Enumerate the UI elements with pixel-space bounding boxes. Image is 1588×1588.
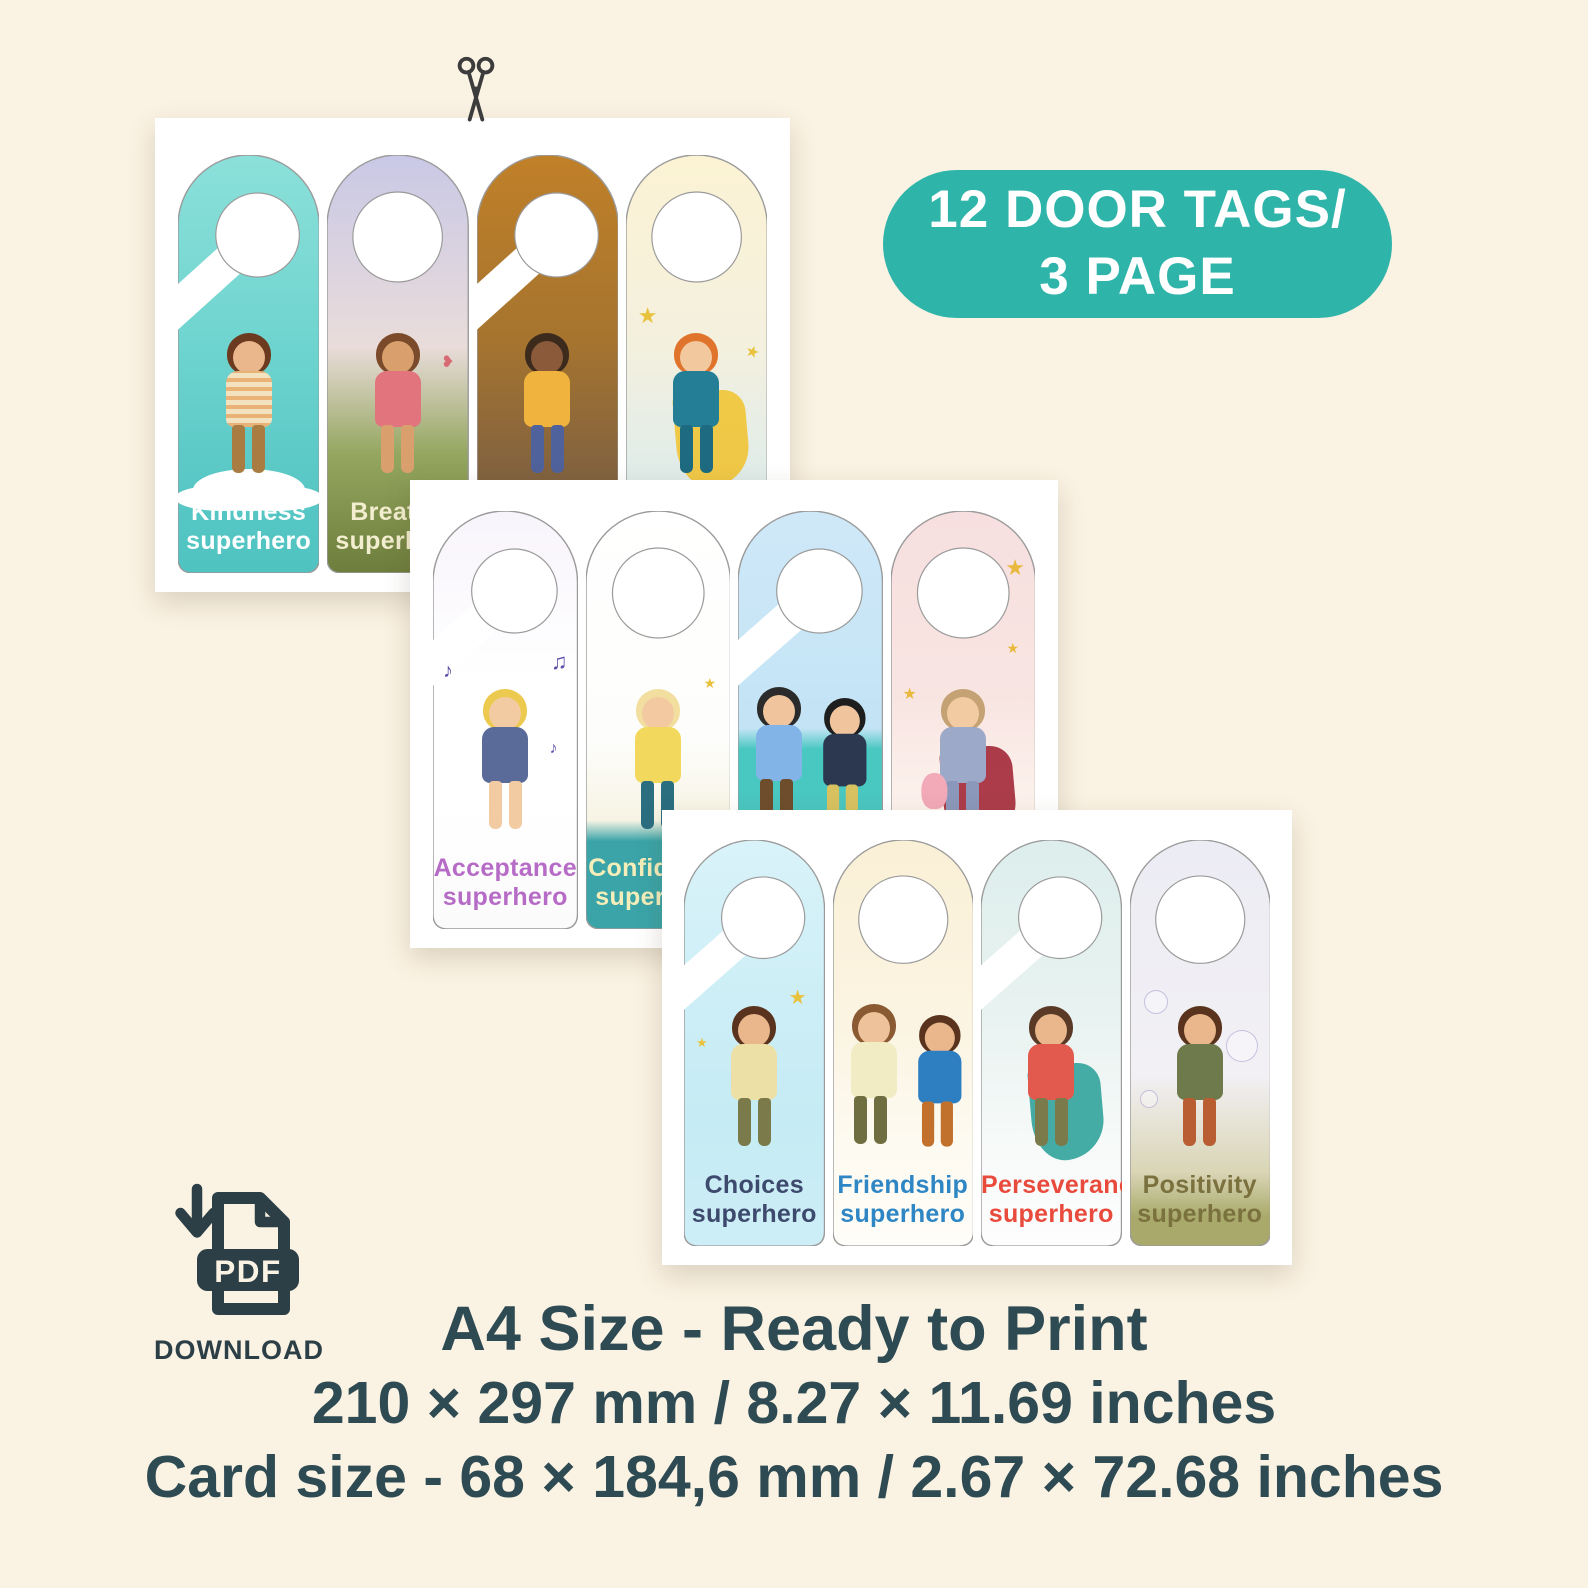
- size-info: A4 Size - Ready to Print 210 × 297 mm / …: [30, 1292, 1558, 1514]
- sparkle-icon: ★: [696, 1036, 708, 1049]
- tag-label: Choices superhero: [684, 1171, 825, 1228]
- page-sheet-3: ★ ★ Choices superhero: [662, 810, 1292, 1265]
- svg-text:PDF: PDF: [214, 1253, 282, 1289]
- music-note-icon: ♫: [551, 651, 568, 673]
- music-note-icon: ♪: [443, 661, 453, 681]
- size-info-line-2: 210 × 297 mm / 8.27 × 11.69 inches: [30, 1366, 1558, 1440]
- product-preview: Kindness superhero ❥: [0, 0, 1588, 1588]
- kid-figure: [512, 333, 582, 483]
- tag-label: Perseverance superhero: [981, 1171, 1122, 1228]
- bubble: [1140, 1090, 1158, 1108]
- door-tag-friendship: Friendship superhero: [833, 840, 974, 1246]
- tag-label: Acceptance superhero: [433, 854, 578, 911]
- kid-figure: [719, 1006, 789, 1156]
- badge-line-1: 12 DOOR TAGS/: [928, 177, 1346, 244]
- tag-label: Kindness superhero: [178, 498, 319, 555]
- kid-figure: [661, 333, 731, 483]
- sparkle-icon: ★: [1005, 557, 1025, 579]
- kid-figure: [839, 1004, 903, 1154]
- door-tag-kindness: Kindness superhero: [178, 155, 319, 573]
- sparkle-icon: ★: [638, 305, 658, 327]
- tag-label: Positivity superhero: [1130, 1171, 1271, 1228]
- sparkle-icon: ★: [743, 343, 762, 363]
- door-tag-positivity: Positivity superhero: [1130, 840, 1271, 1246]
- music-note-icon: ♪: [550, 741, 558, 757]
- tag-label: Friendship superhero: [833, 1171, 974, 1228]
- badge-line-2: 3 PAGE: [1039, 244, 1235, 311]
- door-tag-perseverance: Perseverance superhero: [981, 840, 1122, 1246]
- kid-figure: [214, 333, 284, 483]
- scissors-icon: [449, 54, 503, 128]
- kid-figure: [1165, 1006, 1235, 1156]
- door-tag-choices: ★ ★ Choices superhero: [684, 840, 825, 1246]
- butterfly-icon: ❥: [441, 355, 454, 371]
- size-info-line-3: Card size - 68 × 184,6 mm / 2.67 × 72.68…: [30, 1440, 1558, 1514]
- baby-figure: [921, 773, 947, 809]
- sparkle-icon: ★: [1006, 641, 1019, 655]
- door-tag-acceptance: ♪ ♫ ♪ Acceptance superhero: [433, 511, 578, 929]
- sparkle-icon: ★: [703, 676, 716, 690]
- sparkle-icon: ★: [903, 687, 917, 703]
- kid-figure: [363, 333, 433, 483]
- count-badge: 12 DOOR TAGS/ 3 PAGE: [883, 170, 1392, 318]
- size-info-line-1: A4 Size - Ready to Print: [30, 1292, 1558, 1366]
- kid-figure: [906, 1015, 966, 1156]
- sparkle-icon: ★: [789, 988, 807, 1008]
- kid-figure: [1016, 1006, 1086, 1156]
- kid-figure: [470, 689, 540, 839]
